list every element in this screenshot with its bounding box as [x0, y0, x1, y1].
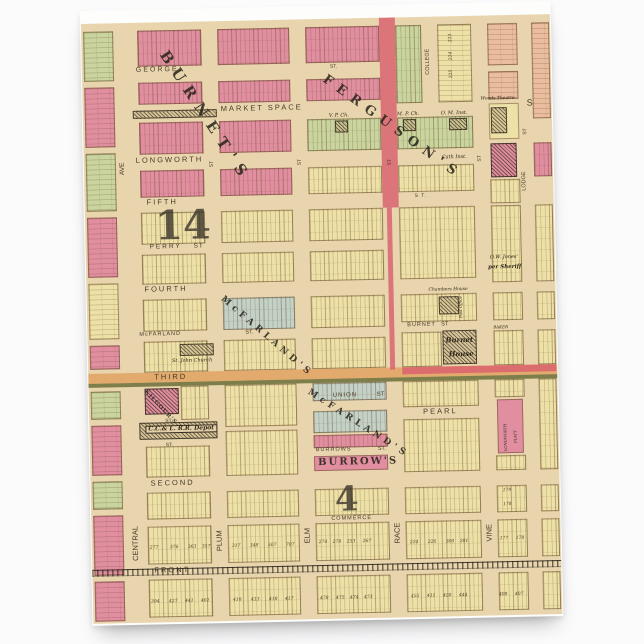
ward-number: 4: [335, 482, 359, 516]
landmark-label: LONGWORTH: [503, 423, 507, 451]
city-block: [497, 485, 528, 513]
building-hatch-pink: [490, 143, 517, 178]
street-label: ST: [441, 322, 448, 328]
street-label: ELM: [303, 528, 311, 544]
lot-number: 461: [201, 599, 210, 604]
lot-number: 317: [232, 545, 241, 550]
lot-number: 475: [336, 597, 345, 602]
city-block: [88, 283, 119, 340]
street-label: S: [527, 99, 533, 108]
lot-number: 274: [319, 541, 328, 546]
city-block: [493, 292, 524, 321]
city-block: [180, 385, 209, 420]
lot-number: 407: [515, 593, 524, 598]
landmark-label: St. John Church: [172, 358, 212, 364]
city-block: [493, 330, 524, 366]
landmark-label: per Sheriff: [488, 265, 521, 271]
lot-number: 224: [410, 541, 419, 546]
lot-number: 300: [446, 540, 455, 545]
street-label: BURROWS: [316, 447, 352, 453]
lot-number: 277: [150, 546, 159, 551]
city-block: [83, 31, 114, 82]
city-block: [542, 571, 561, 609]
lot-number: 376: [170, 546, 179, 551]
city-block: [541, 484, 560, 511]
lot-number: 267: [363, 540, 372, 545]
street-label: ST.: [378, 447, 386, 453]
landmark-label: Chambers House: [429, 288, 468, 293]
street-label: LODGE: [522, 171, 528, 190]
city-block: [401, 331, 442, 367]
city-block: [312, 337, 387, 370]
city-block: [305, 26, 380, 64]
city-block: [87, 217, 118, 278]
landmark-label: House: [449, 350, 474, 358]
street-label: McFARLAND: [139, 332, 181, 338]
city-block: [395, 25, 423, 104]
building-hatch: [180, 343, 214, 356]
street-label: VINE: [485, 524, 493, 542]
street-label: FRONT: [154, 566, 190, 574]
lot-number: 225: [450, 70, 455, 79]
city-block: [140, 169, 205, 197]
city-block: [498, 572, 529, 611]
lot-number: 418: [269, 598, 278, 603]
building-hatch: [449, 118, 467, 130]
lot-number: 478: [320, 597, 329, 602]
lot-number: 507: [268, 544, 277, 549]
street-label: RACE: [393, 523, 401, 544]
street-label: THIRD: [154, 373, 187, 381]
city-block: [310, 250, 385, 282]
city-block: [95, 581, 126, 622]
city-block: [497, 399, 524, 454]
street-label: MARKET SPACE: [221, 103, 303, 112]
city-block: [405, 486, 482, 515]
city-block: [402, 380, 479, 408]
city-block: [496, 455, 526, 471]
city-block: [86, 153, 117, 212]
city-block: [92, 481, 123, 510]
street-label: ST.: [330, 65, 337, 70]
city-block: [531, 22, 551, 118]
city-block: [217, 28, 290, 65]
street-label: ST: [298, 159, 303, 165]
street-label: ST: [478, 155, 483, 161]
lot-number: 226: [428, 541, 437, 546]
city-block: [538, 378, 558, 469]
lot-number: 444: [459, 594, 468, 599]
street-label: PEARL: [423, 407, 458, 415]
lot-number: 178: [503, 503, 512, 508]
lot-number: 224: [450, 52, 455, 61]
lot-number: 413: [251, 598, 260, 603]
lot-number: 427: [169, 600, 178, 605]
city-block: [139, 121, 204, 154]
city-block: [494, 379, 524, 398]
lot-number: 707: [286, 544, 295, 549]
lot-number: 363: [188, 546, 197, 551]
landmark-label: Woods Theatre: [481, 97, 515, 102]
building-hatch: [491, 107, 508, 133]
city-block: [224, 384, 297, 427]
landmark-label: M. P. Ch.: [397, 112, 420, 117]
street-label: ST: [377, 392, 385, 398]
city-block: [218, 80, 290, 104]
lot-number: 278: [333, 541, 342, 546]
building-hatch: [439, 296, 459, 314]
city-block: [91, 391, 122, 420]
lot-number: 223: [449, 34, 454, 43]
landmark-label: PLATT: [513, 430, 517, 443]
city-block: [399, 206, 476, 280]
city-block: [147, 491, 212, 519]
street-label: BURNET: [407, 323, 436, 329]
lot-number: 473: [364, 596, 373, 601]
street-label: CENTRAL: [131, 526, 139, 561]
landmark-label: Burnet: [446, 336, 474, 344]
street-label: LONGWORTH: [136, 155, 204, 164]
city-block: [309, 208, 384, 242]
city-block: [311, 295, 386, 329]
street-label: UNION: [333, 392, 357, 399]
lot-number: 177: [500, 537, 509, 542]
city-block: [537, 291, 556, 319]
city-block: [146, 445, 211, 477]
lot-number: 455: [411, 595, 420, 600]
street-label: PLUM: [216, 530, 224, 551]
lot-number: 179: [503, 489, 512, 494]
lot-number: 417: [285, 598, 294, 603]
city-block: [437, 24, 473, 103]
street-label: ST: [210, 161, 215, 167]
city-block: [90, 345, 120, 370]
street-label: ST: [388, 159, 393, 165]
city-block: [225, 430, 298, 476]
street-label: S T.: [415, 194, 428, 199]
city-block: [91, 425, 122, 476]
building-hatch: [335, 120, 348, 132]
lot-number: 474: [350, 596, 359, 601]
highlighted-route: [387, 208, 395, 370]
landmark-label: BAKER: [493, 325, 508, 329]
greeting-card: GEORGEMARKET SPACELONGWORTHFIFTHPERRYSTF…: [80, 1, 564, 626]
landmark-label: Cath Inst.: [442, 155, 467, 161]
product-photo: GEORGEMARKET SPACELONGWORTHFIFTHPERRYSTF…: [0, 0, 644, 644]
city-block: [535, 204, 555, 281]
city-block: [490, 179, 520, 204]
district-label: BURROW'S: [318, 456, 398, 468]
lot-number: 411: [427, 595, 436, 600]
city-block: [308, 166, 383, 195]
city-block: [537, 329, 556, 364]
city-block: [84, 87, 115, 148]
lot-number: 394: [151, 600, 160, 605]
city-block: [143, 298, 208, 331]
street-label: ST: [523, 128, 528, 134]
landmark-label: O.W. Jones': [490, 255, 518, 261]
street-label: ST.: [166, 443, 173, 448]
lot-number: 253: [347, 540, 356, 545]
city-block: [227, 490, 300, 519]
city-block: [221, 210, 294, 244]
street-label: AVE: [120, 163, 127, 176]
lot-number: 408: [499, 593, 508, 598]
ward-number: 14: [155, 205, 211, 246]
city-block: [142, 253, 207, 284]
city-block: [533, 142, 552, 176]
street-label: SECOND: [150, 479, 194, 487]
city-block: [541, 518, 560, 556]
lot-number: 178: [516, 537, 525, 542]
landmark-label: V. P. Ch.: [329, 113, 349, 118]
street-label: FOURTH: [144, 285, 187, 293]
lot-number: 441: [185, 600, 194, 605]
lot-number: 201: [460, 540, 469, 545]
landmark-label: O. M. Inst.: [441, 111, 468, 117]
city-block: [222, 252, 295, 284]
street-label: COLLEGE: [425, 49, 431, 75]
landmark-label: C.C.& L. R.R. Depot: [145, 424, 217, 433]
lot-number: 418: [233, 599, 242, 604]
lot-number: 450: [443, 594, 452, 599]
lot-number: 357: [202, 545, 211, 550]
city-block: [403, 418, 480, 473]
map-print: GEORGEMARKET SPACELONGWORTHFIFTHPERRYSTF…: [81, 14, 562, 624]
lot-number: 348: [250, 544, 259, 549]
city-block: [487, 23, 518, 66]
landmark-label: Post Office: [459, 296, 463, 318]
city-block: [93, 515, 124, 576]
